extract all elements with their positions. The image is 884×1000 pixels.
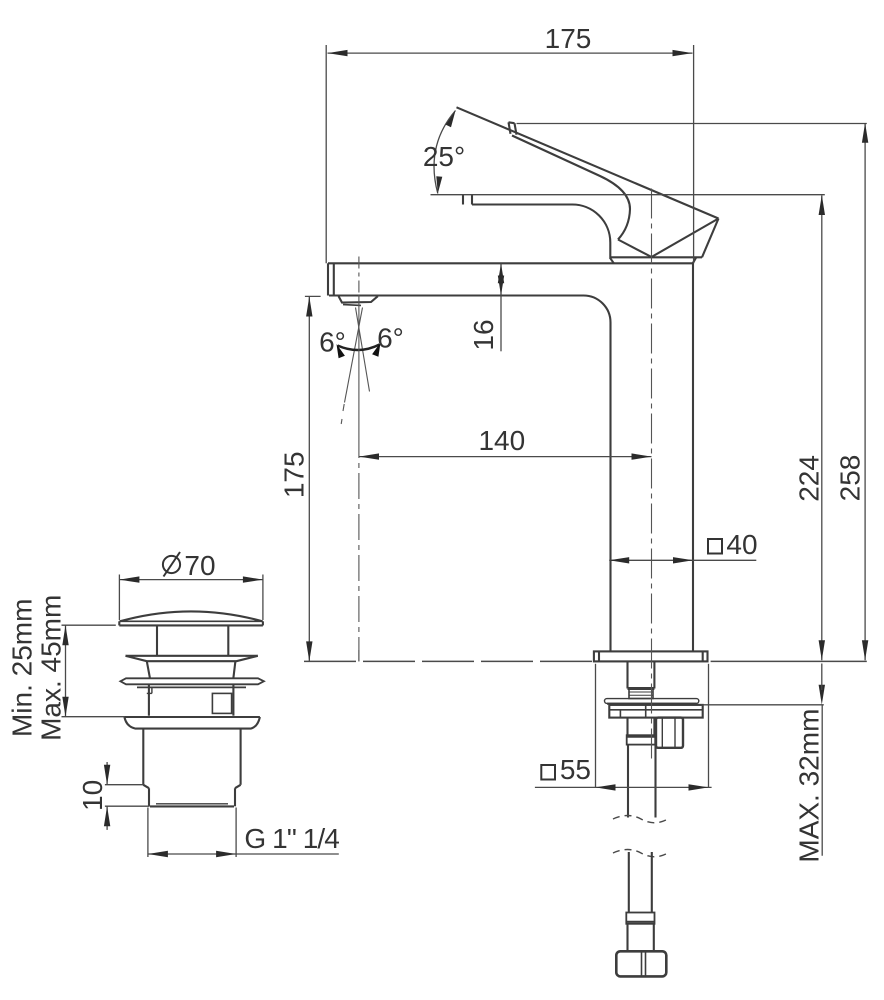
svg-text:224: 224	[793, 455, 824, 502]
svg-text:70: 70	[184, 550, 215, 581]
svg-text:258: 258	[835, 455, 866, 502]
svg-text:G 1" 1/4: G 1" 1/4	[244, 823, 339, 854]
svg-text:10: 10	[77, 780, 108, 811]
svg-text:6°: 6°	[319, 327, 346, 358]
svg-text:175: 175	[545, 23, 592, 54]
svg-text:55: 55	[560, 754, 591, 785]
svg-text:Min. 25mm: Min. 25mm	[7, 599, 38, 737]
svg-text:175: 175	[279, 451, 310, 498]
svg-text:Max. 45mm: Max. 45mm	[36, 595, 67, 741]
svg-text:6°: 6°	[377, 323, 404, 354]
svg-text:40: 40	[726, 529, 757, 560]
svg-text:16: 16	[468, 319, 499, 350]
svg-text:25°: 25°	[423, 141, 465, 172]
svg-text:140: 140	[478, 425, 525, 456]
svg-text:MAX. 32mm: MAX. 32mm	[794, 709, 825, 863]
